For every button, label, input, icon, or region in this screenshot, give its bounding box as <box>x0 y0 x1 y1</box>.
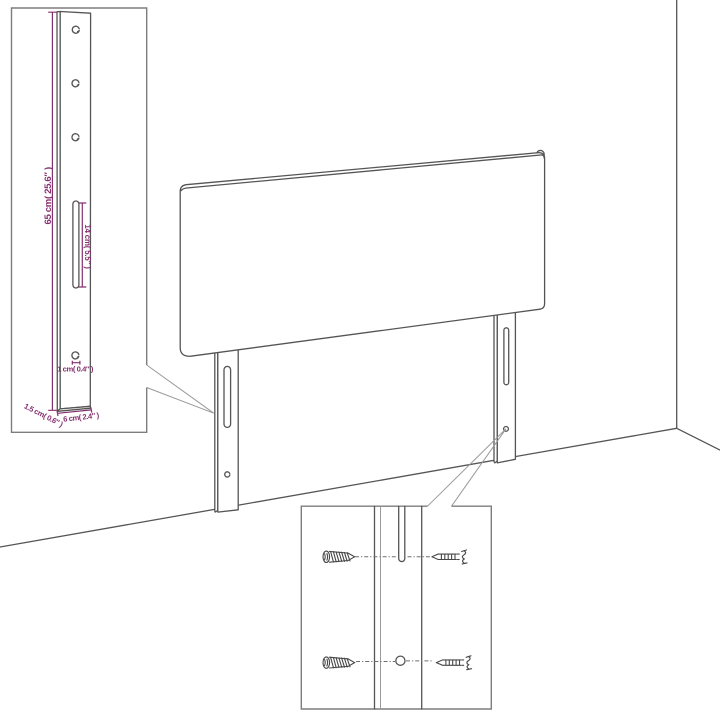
svg-text:14 cm( 5.5″ ): 14 cm( 5.5″ ) <box>83 224 92 269</box>
svg-text:65 cm( 25.6″ ): 65 cm( 25.6″ ) <box>43 167 54 224</box>
svg-text:1 cm( 0.4″ ): 1 cm( 0.4″ ) <box>57 364 94 373</box>
